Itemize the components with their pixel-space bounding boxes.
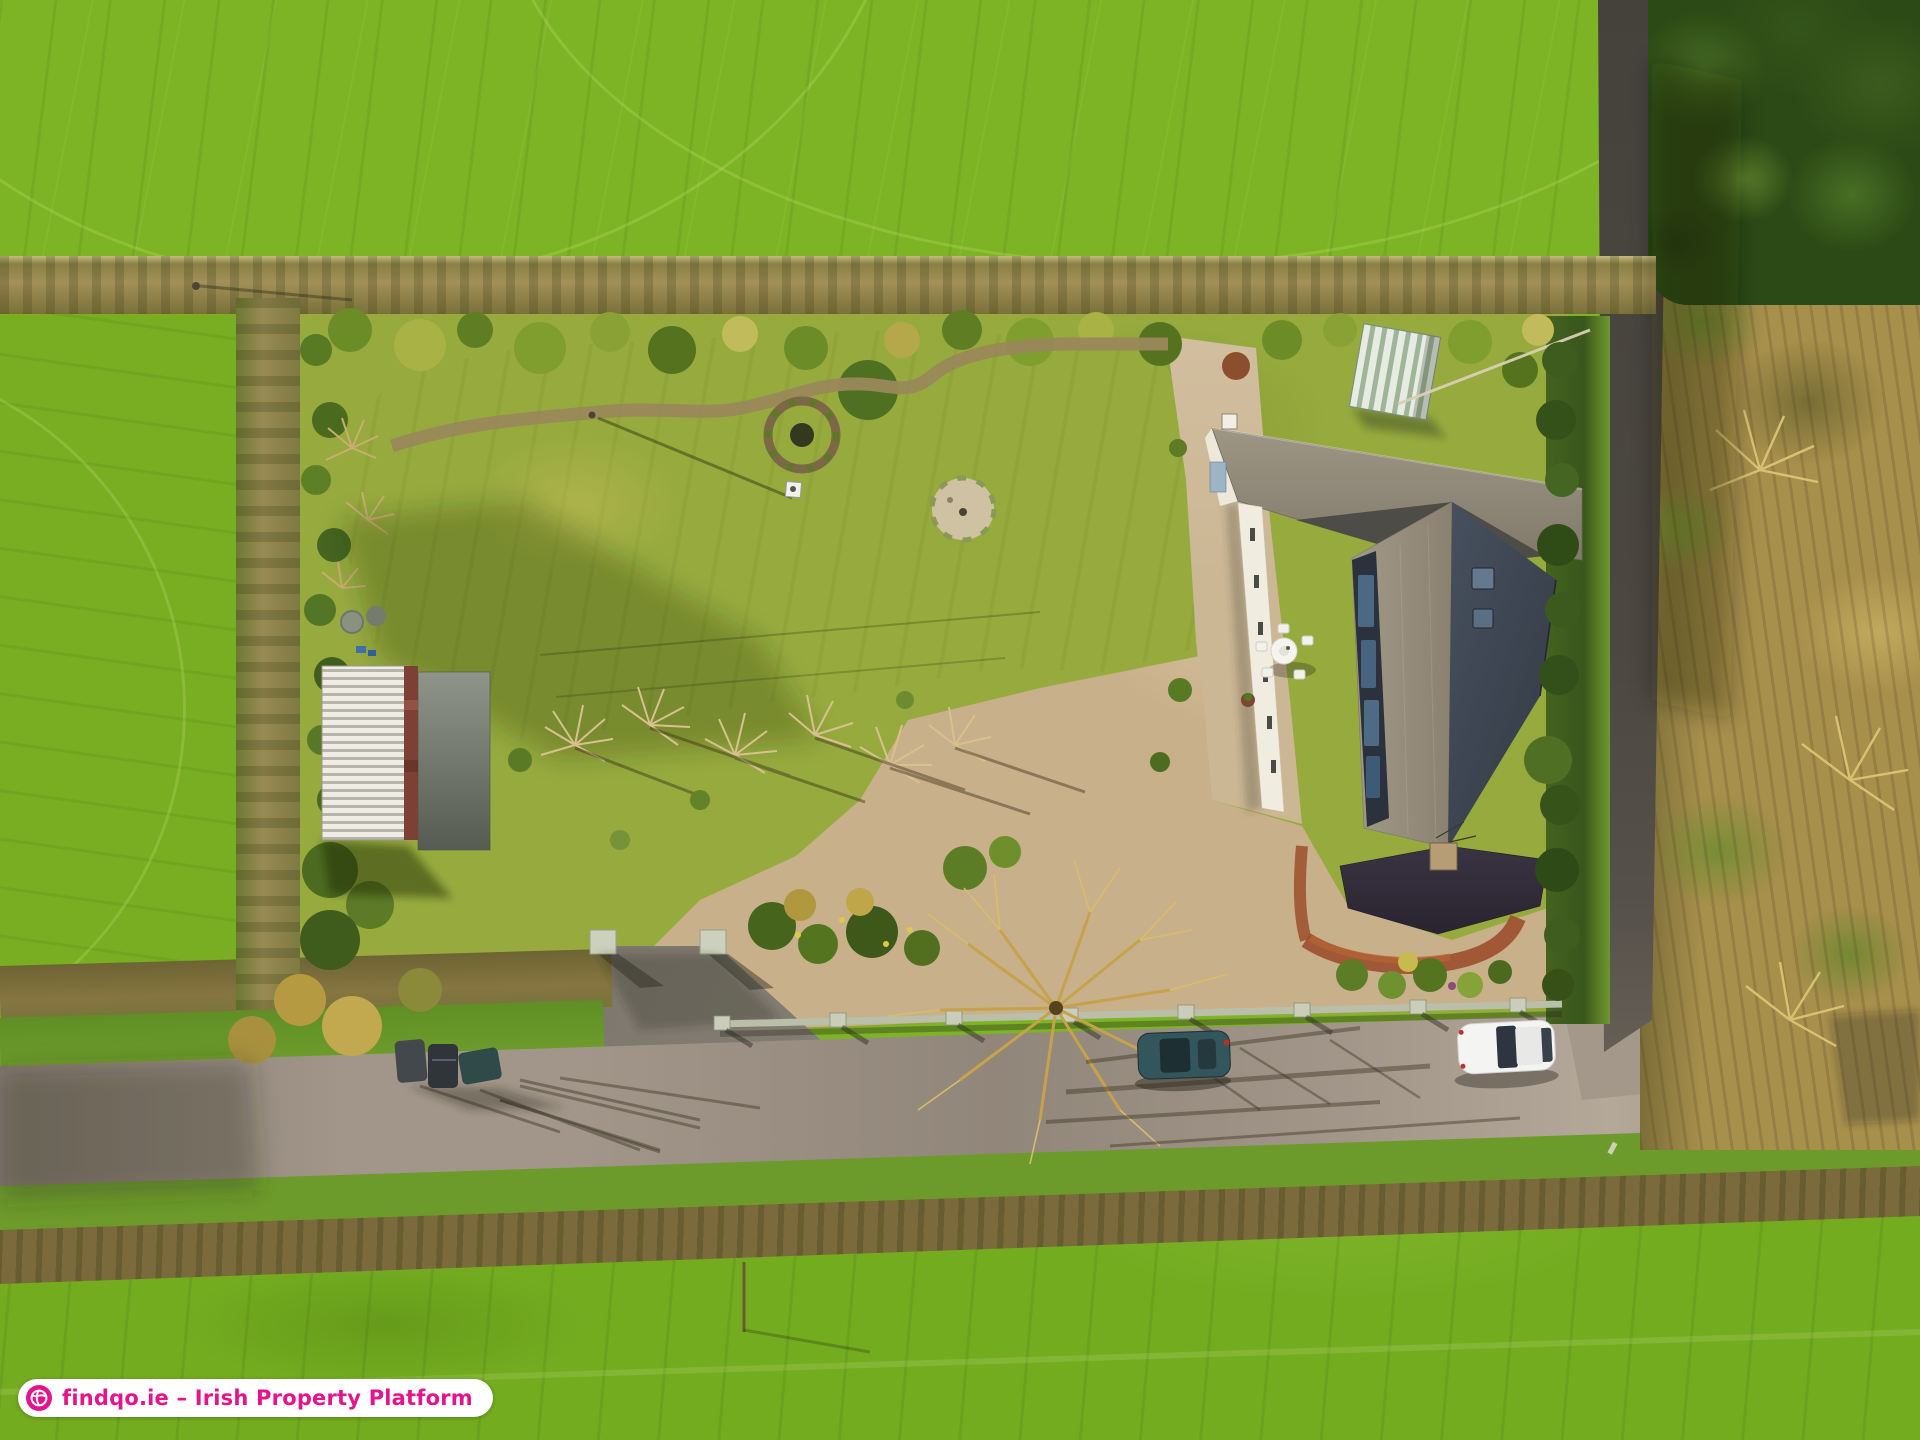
road-shade-right	[1830, 1010, 1920, 1124]
golden-trees-right	[1710, 410, 1908, 1046]
bird-table	[785, 481, 801, 497]
globe-icon	[26, 1385, 52, 1411]
chimney-rear	[1222, 414, 1237, 429]
utility-pole	[192, 282, 352, 300]
wheelie-bins	[394, 1039, 566, 1110]
entrance-shade	[598, 954, 780, 1030]
pot-plant	[1244, 693, 1252, 701]
parked-car-white	[1452, 1019, 1559, 1090]
tree-shadows-on-road	[500, 1028, 1520, 1150]
garden-boundary-wall	[714, 998, 1562, 1046]
garden-shed	[322, 666, 490, 898]
wall-mounted-panel	[1210, 462, 1226, 492]
fence-post	[744, 1262, 870, 1352]
skylight	[1473, 609, 1493, 628]
skylight	[1472, 568, 1494, 589]
small-bush	[1169, 439, 1187, 457]
tree-shade-right-verge	[1652, 60, 1742, 720]
greenhouse	[1349, 324, 1440, 420]
garden-dirt-path	[392, 344, 1168, 446]
watermark-text: findqo.ie – Irish Property Platform	[62, 1386, 473, 1410]
chimney-front	[1430, 843, 1457, 870]
entrance-shrub-island	[748, 888, 940, 966]
parked-car-dark	[1133, 1030, 1231, 1092]
garden-pole	[589, 412, 596, 419]
aerial-photo-scene: findqo.ie – Irish Property Platform	[0, 0, 1920, 1440]
road-marking	[1607, 1142, 1617, 1155]
scene-detail-overlay	[0, 0, 1920, 1440]
shed-concrete-pad	[418, 672, 490, 850]
watermark-badge: findqo.ie – Irish Property Platform	[18, 1379, 493, 1417]
gravel-circle	[932, 478, 994, 540]
stone-ring-bed	[768, 401, 836, 469]
road-shade-left	[0, 1062, 260, 1200]
